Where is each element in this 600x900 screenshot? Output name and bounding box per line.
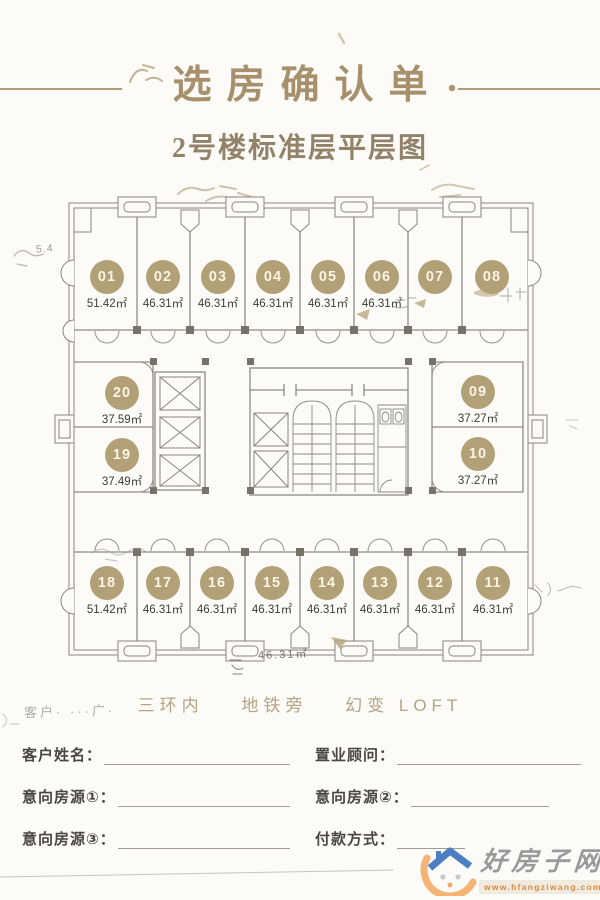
- unit-badge-17: 17: [146, 566, 180, 600]
- door-arcs: [95, 331, 505, 551]
- facade-bays: [55, 197, 547, 661]
- write-in-line: [118, 792, 290, 807]
- unit-badge-10: 10: [461, 437, 495, 471]
- unit-badge-14: 14: [310, 566, 344, 600]
- page-title: 选房确认单: [0, 54, 600, 110]
- unit-area-20: 37.59㎡: [82, 411, 162, 427]
- elevators: [160, 377, 288, 487]
- write-in-line: [411, 792, 549, 807]
- unit-badge-05: 05: [311, 260, 345, 294]
- unit-badge-03: 03: [201, 260, 235, 294]
- unit-badge-20: 20: [105, 376, 139, 410]
- field-label: 意向房源①：: [22, 786, 116, 807]
- dimension-note-left: 5.4: [36, 242, 54, 255]
- field-label: 意向房源③：: [22, 828, 116, 849]
- house-icon: [413, 838, 479, 896]
- field-label: 付款方式：: [315, 828, 395, 849]
- field-customer-name: 客户姓名：: [22, 744, 290, 765]
- unit-badge-12: 12: [418, 566, 452, 600]
- unit-badge-09: 09: [461, 375, 495, 409]
- scan-artifacts: [0, 251, 581, 877]
- unit-badge-18: 18: [90, 566, 124, 600]
- unit-area-06: 46.31㎡: [342, 295, 422, 311]
- field-intended-unit-3: 意向房源③：: [22, 828, 290, 849]
- tagline-item: 幻变 LOFT: [345, 696, 462, 715]
- tagline-item: 地铁旁: [241, 696, 307, 715]
- unit-badge-07: 07: [418, 260, 452, 294]
- unit-badge-02: 02: [146, 260, 180, 294]
- site-watermark: 好房子网 www.hfangziwang.com: [413, 838, 600, 896]
- write-in-line: [104, 750, 290, 765]
- field-intended-unit-2: 意向房源②：: [315, 786, 549, 807]
- page-subtitle: 2号楼标准层平层图: [0, 126, 600, 166]
- field-sales-advisor: 置业顾问：: [315, 744, 581, 765]
- write-in-line: [397, 750, 581, 765]
- unit-badge-13: 13: [363, 566, 397, 600]
- columns: [133, 326, 466, 556]
- field-intended-unit-1: 意向房源①：: [22, 786, 290, 807]
- unit-area-18: 51.42㎡: [67, 601, 147, 617]
- partitions: [74, 210, 528, 648]
- unit-badge-06: 06: [365, 260, 399, 294]
- unit-badge-16: 16: [200, 566, 234, 600]
- field-label: 客户姓名：: [22, 744, 102, 765]
- ghost-print-artifact: 客户· ···广·: [24, 700, 116, 721]
- unit-area-10: 37.27㎡: [438, 472, 518, 488]
- title-rule-right: [458, 88, 600, 90]
- watermark-site-url: www.hfangziwang.com: [479, 880, 600, 894]
- unit-area-09: 37.27㎡: [438, 410, 518, 426]
- stairs: [293, 401, 374, 492]
- outer-walls: [69, 203, 533, 655]
- dimension-note-bottom: 46.31㎡: [258, 645, 309, 663]
- watermark-site-name: 好房子网: [479, 841, 600, 878]
- unit-badge-01: 01: [90, 260, 124, 294]
- unit-area-19: 37.49㎡: [82, 473, 162, 489]
- unit-badge-15: 15: [255, 566, 289, 600]
- unit-badge-08: 08: [475, 260, 509, 294]
- toilets: [378, 405, 406, 492]
- field-label: 置业顾问：: [315, 744, 395, 765]
- unit-badge-19: 19: [105, 438, 139, 472]
- tagline-item: 三环内: [138, 696, 204, 715]
- unit-badge-04: 04: [256, 260, 290, 294]
- field-label: 意向房源②：: [315, 786, 409, 807]
- unit-badge-11: 11: [476, 566, 510, 600]
- write-in-line: [118, 834, 290, 849]
- page-canvas: 选房确认单 2号楼标准层平层图: [0, 0, 600, 900]
